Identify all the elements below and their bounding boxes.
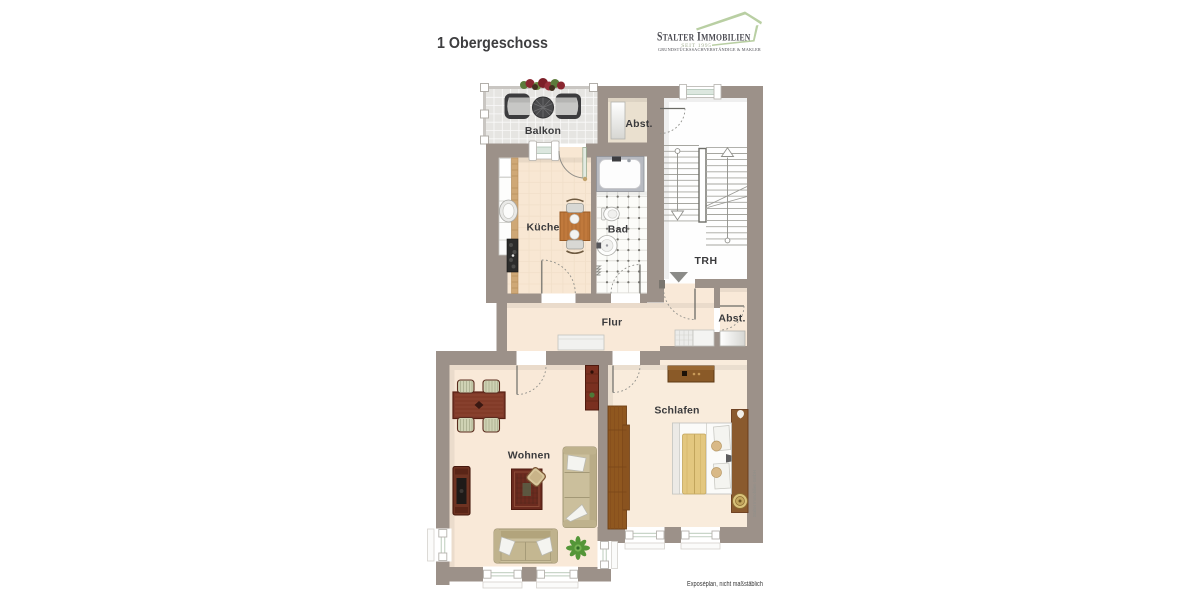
svg-text:TRH: TRH: [694, 255, 717, 267]
svg-text:Abst.: Abst.: [718, 313, 745, 325]
svg-text:Flur: Flur: [602, 317, 623, 329]
svg-text:Balkon: Balkon: [525, 125, 561, 137]
svg-text:Schlafen: Schlafen: [654, 405, 699, 417]
svg-text:Abst.: Abst.: [625, 118, 652, 130]
svg-text:Stalter Immobilien GmbH: Stalter Immobilien GmbH: [752, 470, 757, 517]
svg-text:Küche: Küche: [526, 222, 559, 234]
svg-text:Wohnen: Wohnen: [508, 450, 550, 462]
svg-text:Bad: Bad: [608, 224, 628, 236]
